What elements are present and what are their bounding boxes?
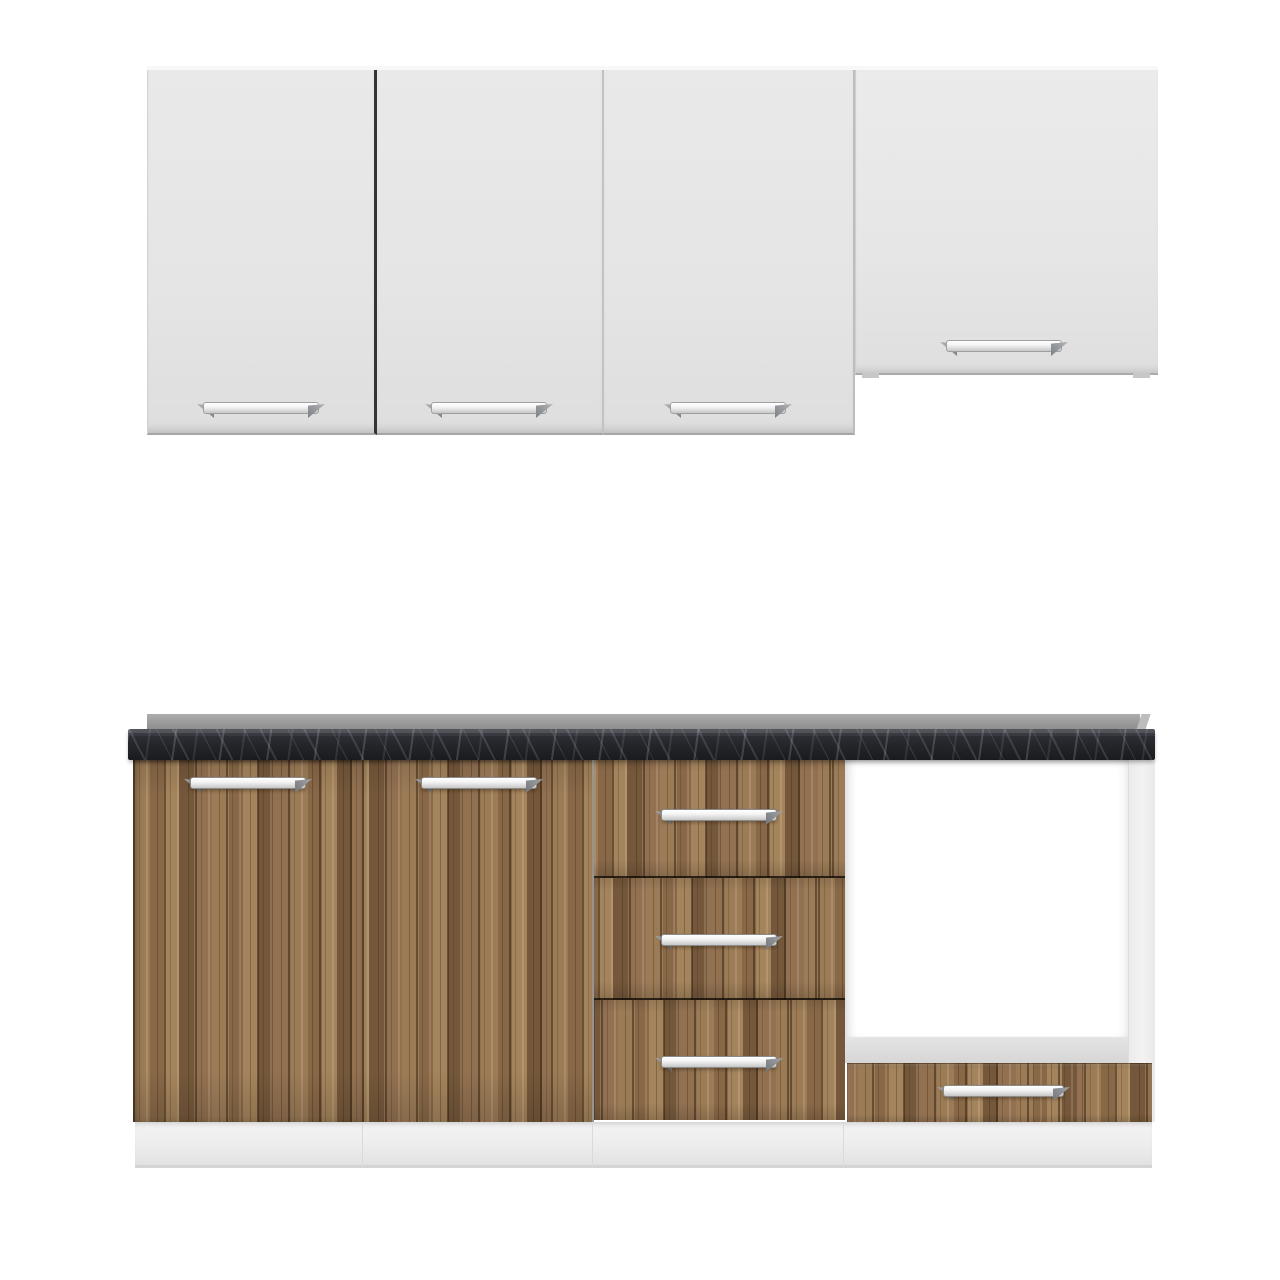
base-cabinet-door-2 bbox=[362, 760, 592, 1122]
handle-bar bbox=[670, 402, 786, 414]
countertop-backsplash bbox=[147, 714, 1140, 730]
base-unit-plinth bbox=[135, 1122, 1152, 1168]
wall-cabinet-door-2 bbox=[377, 70, 604, 435]
product-image-kitchen-set bbox=[0, 0, 1280, 1280]
wall-door-2-handle bbox=[428, 402, 550, 419]
oven-drawer-handle bbox=[940, 1085, 1067, 1102]
oven-compartment-floor bbox=[845, 1037, 1128, 1063]
base-drawer-2-handle bbox=[658, 934, 780, 951]
plinth-seam bbox=[362, 1122, 363, 1168]
handle-bar bbox=[661, 934, 777, 946]
base-door-2-handle bbox=[418, 777, 540, 794]
handle-bar bbox=[661, 1056, 777, 1068]
handle-bar bbox=[190, 777, 306, 789]
base-drawer-3-handle bbox=[658, 1056, 780, 1073]
handle-bar bbox=[943, 1085, 1064, 1097]
base-drawer-1-handle bbox=[658, 809, 780, 826]
handle-bar bbox=[661, 809, 777, 821]
wall-door-3-handle bbox=[667, 402, 789, 419]
plinth-seam bbox=[843, 1122, 844, 1168]
wall-cabinet-door-4-short bbox=[855, 70, 1158, 375]
wall-cabinet-door-1 bbox=[147, 70, 377, 435]
wall-cabinet-door-3 bbox=[604, 70, 855, 435]
wall-door-4-handle bbox=[943, 340, 1065, 357]
oven-compartment-cavity bbox=[845, 760, 1128, 1037]
handle-bar bbox=[421, 777, 537, 789]
countertop bbox=[128, 729, 1155, 760]
wall-cabinet-foot-left bbox=[862, 373, 879, 378]
wall-cabinet-foot-right bbox=[1133, 373, 1150, 378]
handle-bar bbox=[203, 402, 319, 414]
base-cabinet-door-1 bbox=[133, 760, 362, 1122]
handle-bar bbox=[431, 402, 547, 414]
base-door-1-handle bbox=[187, 777, 309, 794]
handle-bar bbox=[946, 340, 1062, 352]
wall-door-1-handle bbox=[200, 402, 322, 419]
plinth-seam bbox=[592, 1122, 593, 1168]
